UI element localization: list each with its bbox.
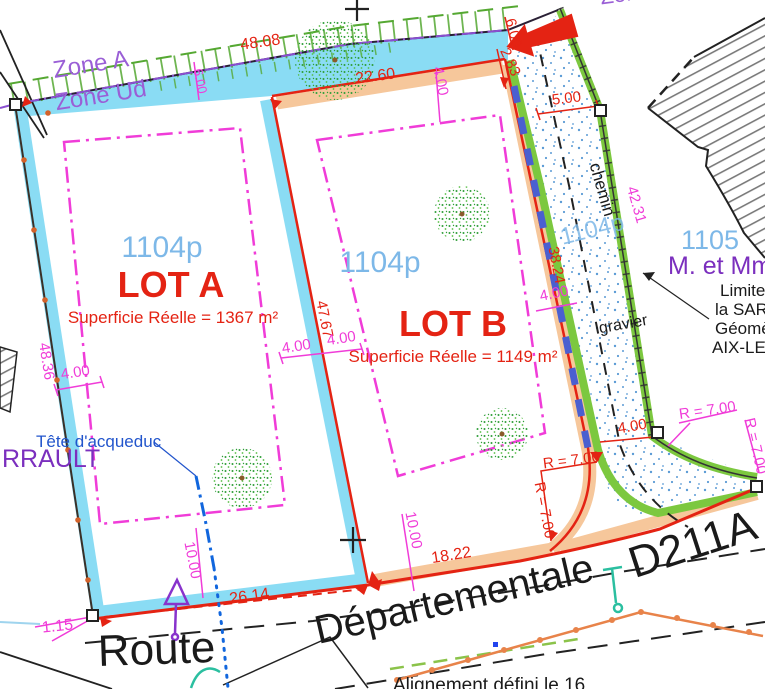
neighbor-note-4: AIX-LES — [712, 338, 765, 357]
lot-b-title: LOT B — [399, 303, 507, 344]
road-name-route: Route — [97, 623, 216, 676]
parcel-1105-number: 1105 — [681, 225, 739, 255]
lot-a-title: LOT A — [118, 264, 225, 305]
west-owner-label: RRAULT — [2, 445, 100, 473]
site-plan-canvas: Zone A Zone Ud Zone 48.08 22.60 6.00 2.8… — [0, 0, 765, 689]
tree-icon — [295, 20, 375, 100]
neighbor-note-1: Limite — [720, 281, 765, 300]
lot-b-parcel-number: 1104p — [339, 246, 420, 279]
blue-marker-dot — [493, 642, 498, 647]
dim-1-15: 1.15 — [41, 616, 74, 636]
neighbor-owner-label: M. et Mme — [668, 252, 765, 280]
tree-icon — [434, 186, 490, 242]
lot-a-area: Superficie Réelle = 1367 m² — [68, 308, 279, 327]
lot-a-parcel-number: 1104p — [121, 231, 202, 264]
neighbor-note-3: Géomè — [715, 319, 765, 338]
tree-icon — [212, 448, 272, 508]
lot-b-area: Superficie Réelle = 1149 m² — [349, 347, 558, 366]
alignment-note: Alignement défini le 16 — [393, 675, 585, 689]
tree-icon — [476, 408, 528, 460]
dim-5-00: 5.00 — [551, 88, 582, 108]
cadastral-plan: Zone A Zone Ud Zone 48.08 22.60 6.00 2.8… — [0, 0, 765, 689]
neighbor-note-2: la SARL — [715, 300, 765, 319]
